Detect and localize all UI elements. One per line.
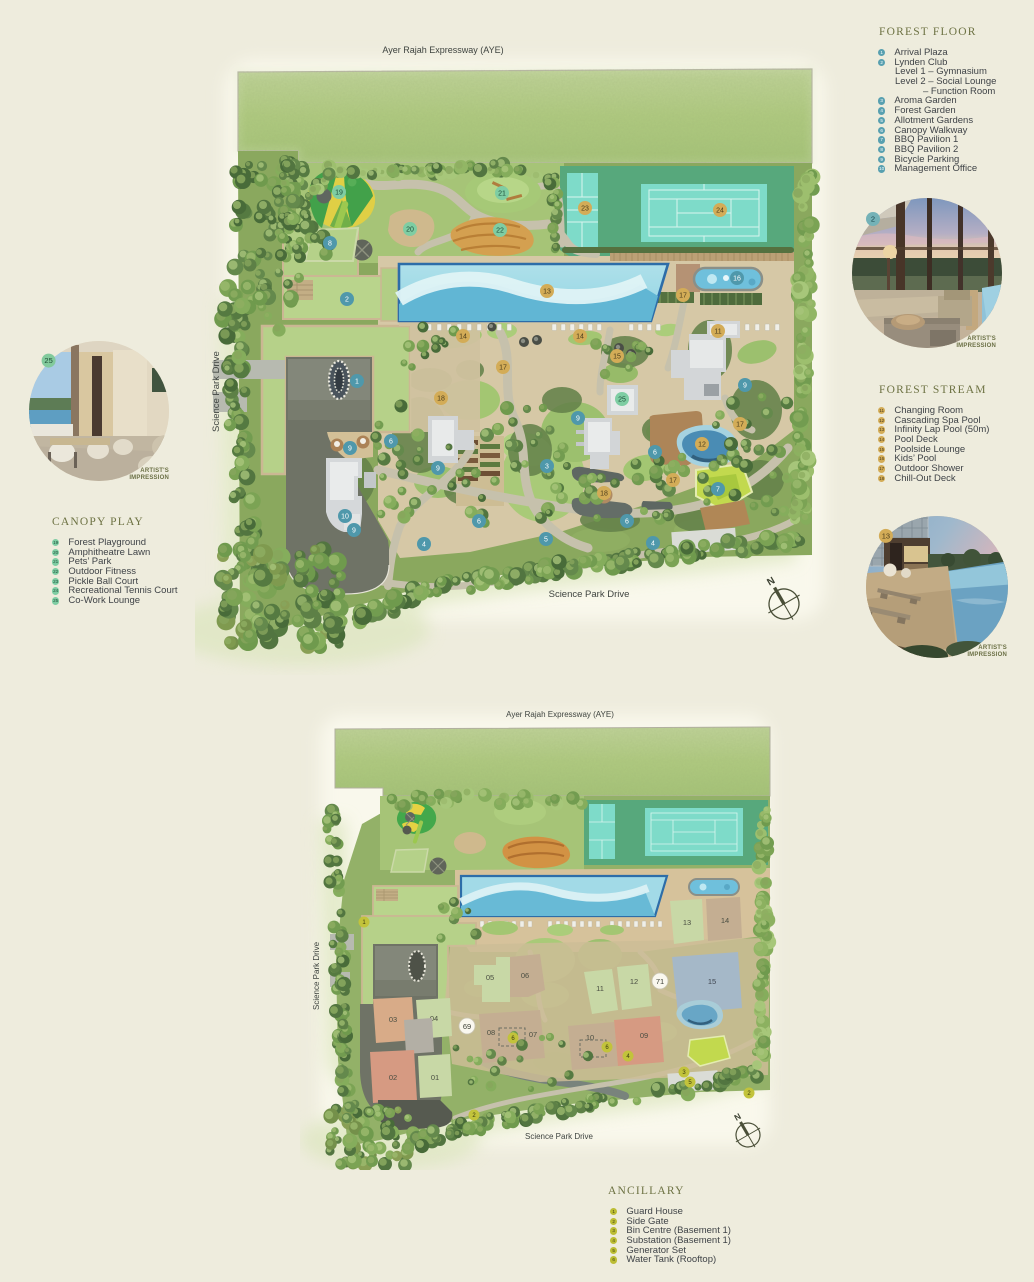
svg-text:01: 01 bbox=[431, 1073, 439, 1082]
svg-text:09: 09 bbox=[640, 1031, 648, 1040]
svg-text:21: 21 bbox=[498, 191, 506, 198]
svg-text:9: 9 bbox=[576, 416, 580, 423]
svg-text:15: 15 bbox=[613, 354, 621, 361]
svg-text:Ayer Rajah Expressway (AYE): Ayer Rajah Expressway (AYE) bbox=[382, 45, 503, 55]
svg-text:12: 12 bbox=[630, 977, 638, 986]
svg-text:6: 6 bbox=[653, 450, 657, 457]
svg-text:6: 6 bbox=[389, 439, 393, 446]
svg-text:02: 02 bbox=[389, 1073, 397, 1082]
svg-text:3: 3 bbox=[545, 464, 549, 471]
svg-text:11: 11 bbox=[714, 329, 721, 336]
svg-text:18: 18 bbox=[437, 396, 445, 403]
svg-text:22: 22 bbox=[496, 228, 504, 235]
svg-text:15: 15 bbox=[708, 977, 716, 986]
svg-text:6: 6 bbox=[625, 519, 629, 526]
svg-text:Science Park Drive: Science Park Drive bbox=[549, 589, 630, 600]
svg-text:Science Park Drive: Science Park Drive bbox=[312, 941, 321, 1010]
svg-text:1: 1 bbox=[355, 379, 359, 386]
svg-text:8: 8 bbox=[328, 241, 332, 248]
svg-text:14: 14 bbox=[576, 334, 584, 341]
svg-text:12: 12 bbox=[698, 442, 706, 449]
svg-text:14: 14 bbox=[721, 916, 729, 925]
svg-text:9: 9 bbox=[436, 466, 440, 473]
svg-text:10: 10 bbox=[341, 514, 349, 521]
svg-text:Science Park Drive: Science Park Drive bbox=[211, 351, 222, 432]
svg-text:17: 17 bbox=[669, 478, 677, 485]
svg-text:5: 5 bbox=[544, 537, 548, 544]
svg-text:23: 23 bbox=[581, 206, 589, 213]
svg-text:Ayer Rajah Expressway (AYE): Ayer Rajah Expressway (AYE) bbox=[506, 710, 614, 719]
svg-text:71: 71 bbox=[656, 977, 664, 986]
svg-text:19: 19 bbox=[335, 190, 343, 197]
svg-text:20: 20 bbox=[406, 227, 414, 234]
svg-text:18: 18 bbox=[600, 491, 608, 498]
svg-text:10: 10 bbox=[586, 1033, 594, 1042]
svg-text:2: 2 bbox=[345, 297, 349, 304]
svg-text:24: 24 bbox=[716, 208, 724, 215]
svg-text:03: 03 bbox=[389, 1015, 397, 1024]
svg-text:17: 17 bbox=[499, 365, 507, 372]
svg-text:13: 13 bbox=[683, 918, 691, 927]
svg-text:9: 9 bbox=[352, 528, 356, 535]
svg-text:9: 9 bbox=[743, 383, 747, 390]
svg-text:7: 7 bbox=[716, 487, 720, 494]
svg-text:06: 06 bbox=[521, 971, 529, 980]
svg-text:11: 11 bbox=[596, 984, 604, 993]
svg-text:08: 08 bbox=[487, 1028, 495, 1037]
svg-text:13: 13 bbox=[543, 289, 551, 296]
svg-text:05: 05 bbox=[486, 973, 494, 982]
svg-text:2: 2 bbox=[871, 215, 875, 224]
svg-text:25: 25 bbox=[44, 356, 52, 365]
svg-text:13: 13 bbox=[882, 531, 890, 540]
svg-text:Science Park Drive: Science Park Drive bbox=[525, 1132, 594, 1141]
svg-text:4: 4 bbox=[651, 541, 655, 548]
svg-text:69: 69 bbox=[463, 1022, 471, 1031]
svg-text:25: 25 bbox=[618, 397, 626, 404]
svg-text:16: 16 bbox=[733, 276, 741, 283]
svg-text:17: 17 bbox=[679, 293, 687, 300]
svg-text:6: 6 bbox=[477, 519, 481, 526]
svg-text:4: 4 bbox=[422, 542, 426, 549]
svg-text:07: 07 bbox=[529, 1030, 537, 1039]
svg-text:14: 14 bbox=[459, 334, 467, 341]
svg-text:17: 17 bbox=[736, 422, 744, 429]
svg-text:9: 9 bbox=[348, 446, 352, 453]
